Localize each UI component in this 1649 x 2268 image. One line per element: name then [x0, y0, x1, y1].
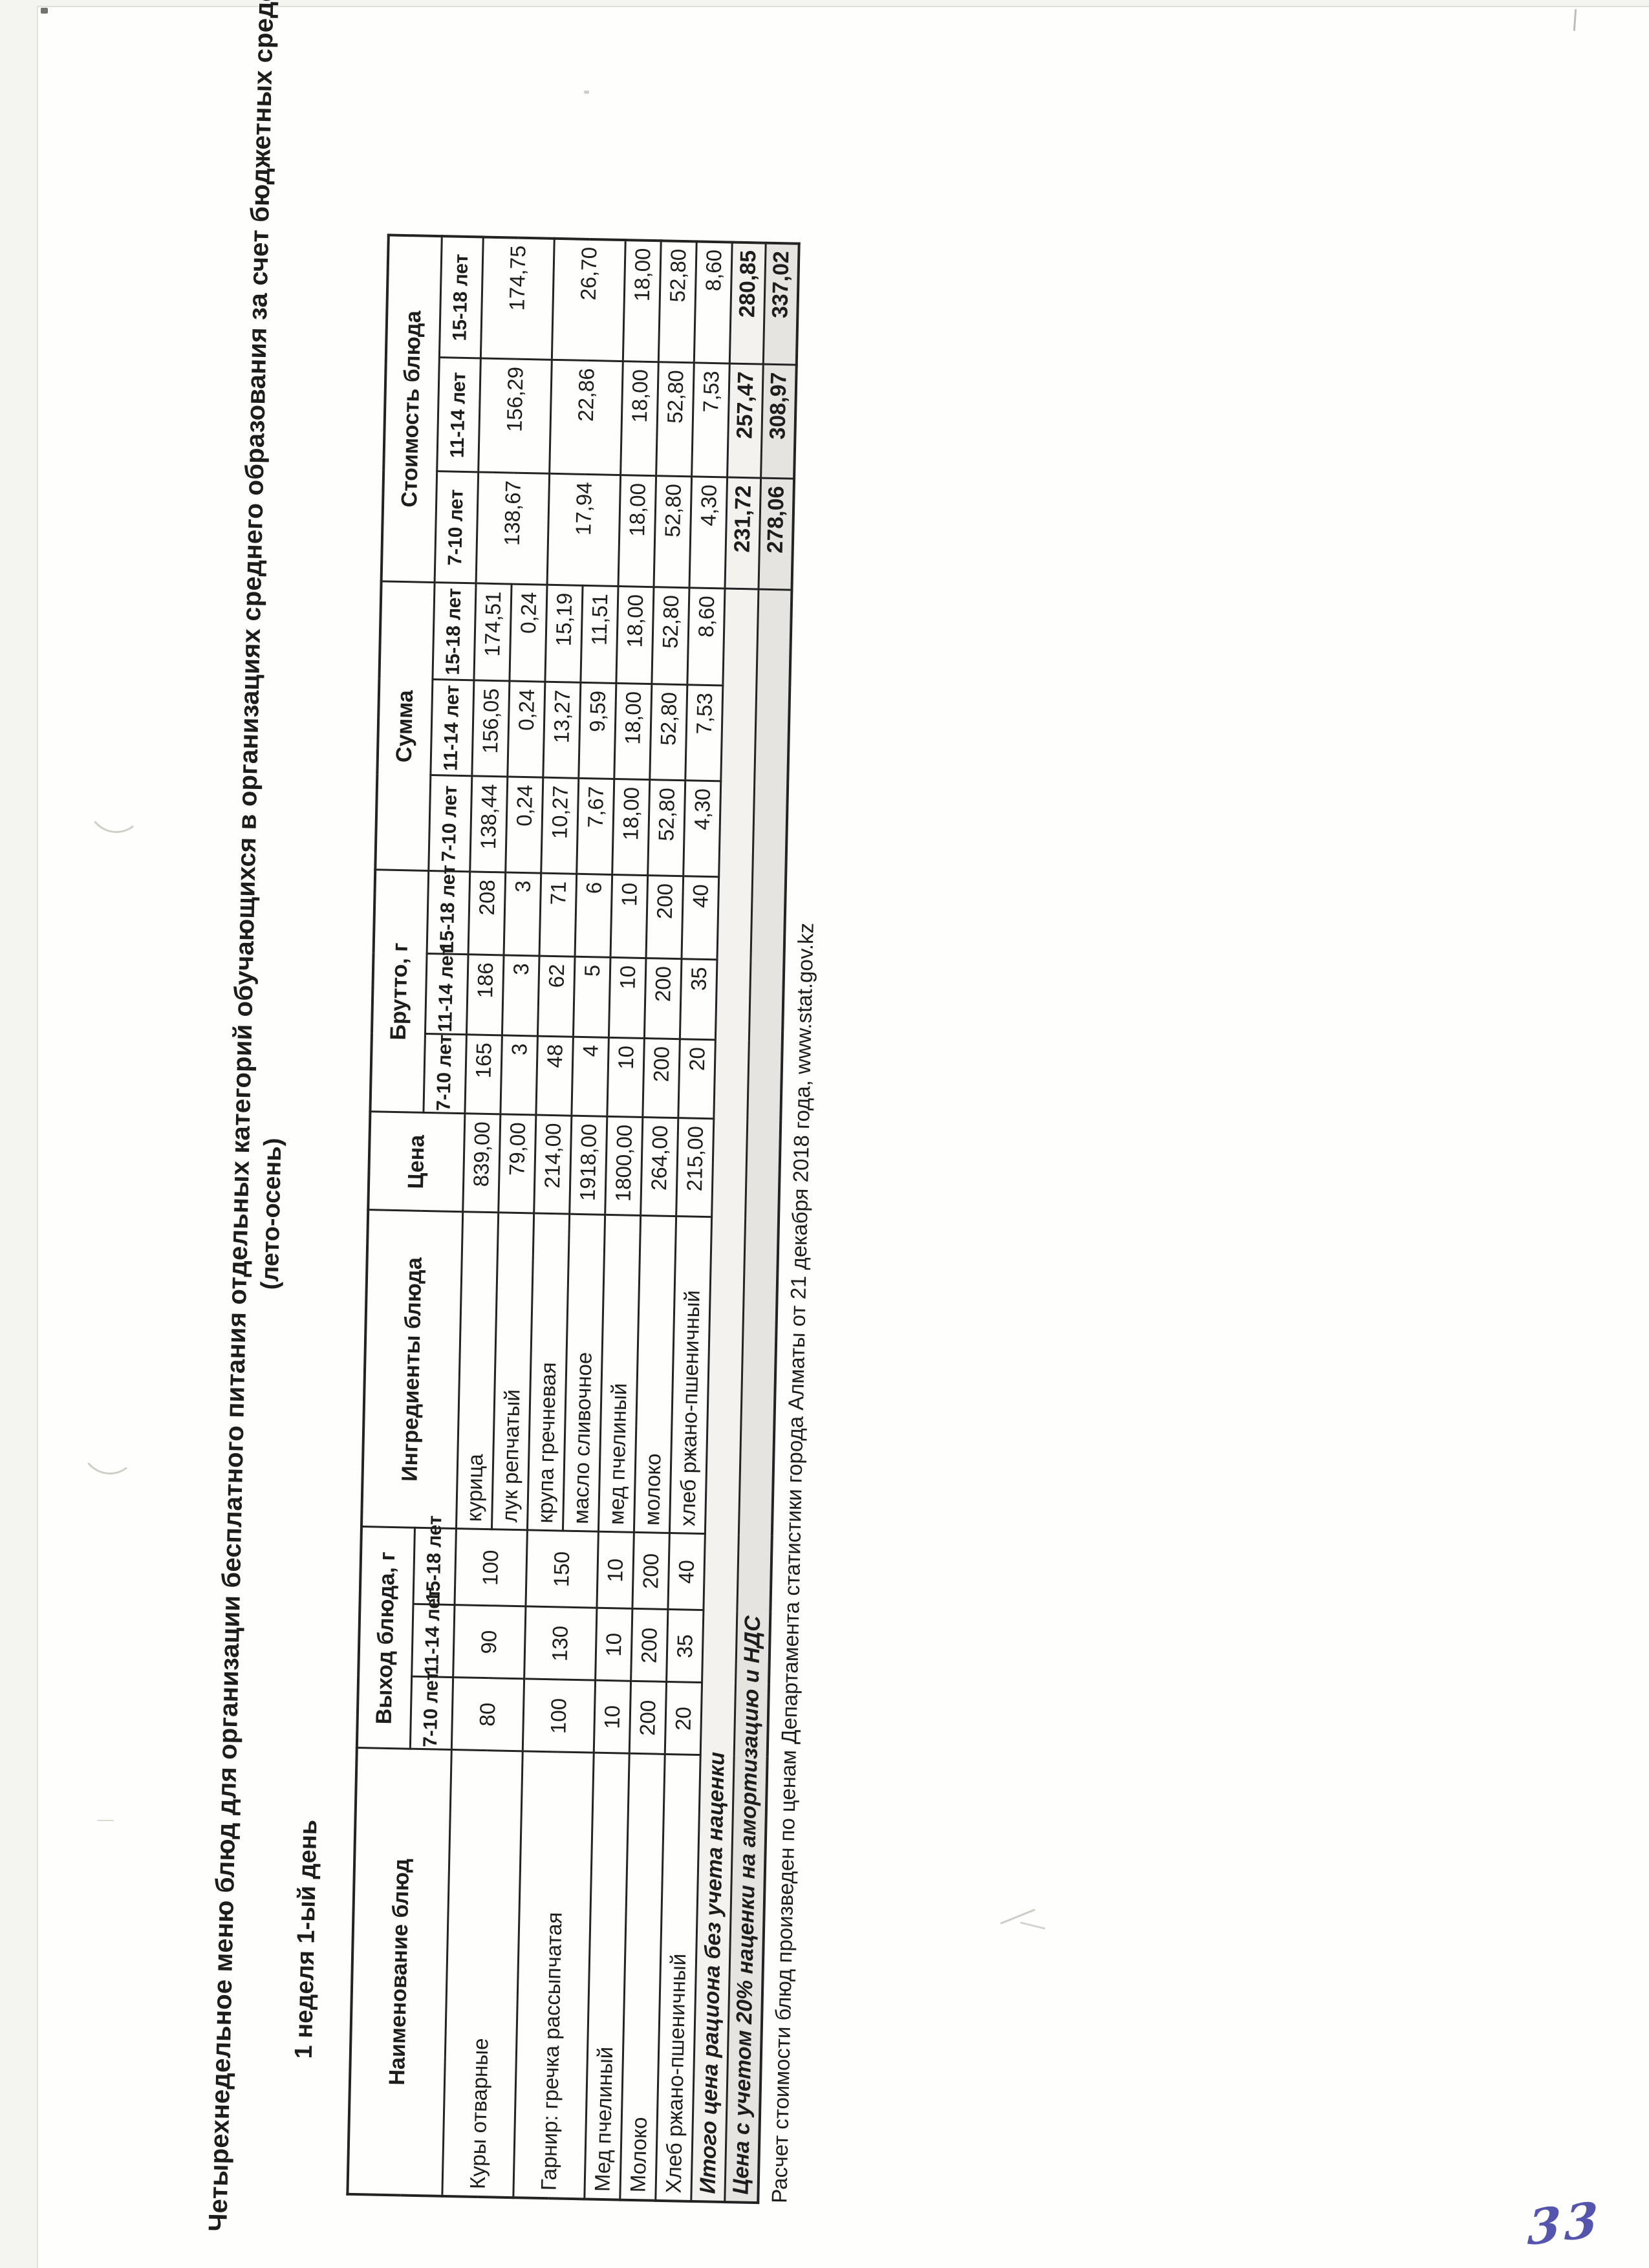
cost-value-cell: 156,29 [478, 358, 552, 473]
cost-value-cell: 138,67 [476, 472, 550, 585]
brutto-value-cell: 62 [537, 956, 575, 1037]
output-value-cell: 20 [665, 1682, 702, 1755]
output-value-cell: 200 [632, 1533, 669, 1610]
sum-value-cell: 13,27 [543, 682, 580, 779]
brutto-value-cell: 200 [644, 958, 682, 1039]
cost-value-cell: 26,70 [552, 239, 625, 362]
col-header-ingredients: Ингредиенты блюда [361, 1210, 462, 1529]
output-value-cell: 90 [453, 1605, 525, 1679]
scan-speck [41, 8, 48, 14]
sum-value-cell: 11,51 [580, 586, 618, 684]
brutto-value-cell: 71 [539, 874, 577, 957]
sum-value-cell: 138,44 [469, 776, 507, 872]
brutto-value-cell: 186 [466, 955, 504, 1035]
ingredient-name-cell: масло сливочное [563, 1215, 605, 1532]
age-header-brutto-3: 15-18 лет [427, 871, 470, 955]
output-value-cell: 100 [523, 1679, 595, 1753]
subtotal-value-7-10: 231,72 [724, 477, 760, 589]
price-value-cell: 839,00 [462, 1114, 500, 1213]
age-header-output-2: 11-14 лет [411, 1604, 454, 1678]
brutto-value-cell: 3 [502, 955, 539, 1036]
sum-value-cell: 0,24 [509, 584, 546, 682]
brutto-value-cell: 3 [504, 872, 541, 956]
price-value-cell: 214,00 [533, 1115, 571, 1214]
rotated-document: Четырехнедельное меню блюд для организац… [200, 195, 837, 2244]
header-row-groups: Наименование блюд Выход блюда, г Ингреди… [347, 235, 441, 2195]
cost-value-cell: 174,75 [480, 237, 554, 360]
sum-value-cell: 0,24 [507, 681, 544, 777]
price-value-cell: 1918,00 [569, 1116, 607, 1215]
sum-value-cell: 0,24 [505, 777, 543, 873]
handwritten-page-number: 33 [1527, 2191, 1602, 2256]
cost-value-cell: 18,00 [620, 362, 658, 476]
markup-value-7-10: 278,06 [758, 479, 794, 590]
price-value-cell: 264,00 [640, 1118, 678, 1216]
output-value-cell: 40 [667, 1533, 704, 1610]
menu-cost-table: Наименование блюд Выход блюда, г Ингреди… [346, 233, 800, 2204]
brutto-value-cell: 200 [645, 876, 683, 959]
sum-value-cell: 174,51 [473, 583, 511, 681]
brutto-value-cell: 20 [678, 1039, 715, 1119]
output-value-cell: 10 [595, 1608, 632, 1681]
cost-value-cell: 8,60 [694, 241, 732, 363]
sum-value-cell: 10,27 [541, 778, 578, 874]
cost-value-cell: 7,53 [691, 363, 729, 477]
brutto-value-cell: 35 [680, 959, 717, 1040]
cost-value-cell: 18,00 [618, 475, 656, 587]
sum-value-cell: 4,30 [683, 781, 720, 877]
output-value-cell: 200 [629, 1681, 666, 1755]
age-header-output-3: 15-18 лет [413, 1528, 455, 1605]
menu-table-body: Куры отварные8090100курица839,0016518620… [442, 237, 731, 2201]
markup-value-11-14: 308,97 [760, 365, 797, 479]
output-value-cell: 100 [454, 1529, 526, 1606]
sum-value-cell: 7,53 [685, 685, 722, 781]
output-value-cell: 130 [524, 1606, 596, 1680]
age-header-sum-2: 11-14 лет [430, 680, 473, 776]
sum-value-cell: 52,80 [651, 587, 689, 685]
output-value-cell: 35 [666, 1610, 703, 1683]
price-value-cell: 215,00 [676, 1118, 713, 1217]
cost-value-cell: 22,86 [549, 360, 623, 475]
brutto-value-cell: 200 [642, 1039, 680, 1118]
cost-value-cell: 52,80 [656, 362, 694, 477]
cost-value-cell: 52,80 [654, 476, 692, 588]
output-value-cell: 150 [525, 1530, 598, 1608]
ingredient-name-cell: мед пчелиный [598, 1215, 640, 1533]
price-value-cell: 79,00 [498, 1114, 535, 1213]
pencil-mark [97, 1820, 114, 1821]
output-value-cell: 200 [630, 1609, 667, 1682]
brutto-value-cell: 4 [571, 1037, 609, 1117]
brutto-value-cell: 10 [609, 958, 646, 1039]
age-header-brutto-2: 11-14 лет [425, 954, 468, 1035]
col-header-cost: Стоимость блюда [382, 235, 442, 583]
brutto-value-cell: 208 [468, 872, 506, 955]
age-header-cost-3: 15-18 лет [439, 236, 483, 358]
subtotal-value-11-14: 257,47 [727, 363, 763, 478]
ingredient-name-cell: крупа гречневая [527, 1213, 569, 1531]
brutto-value-cell: 40 [681, 876, 718, 960]
brutto-value-cell: 5 [573, 957, 610, 1038]
scan-speck [584, 91, 589, 94]
sum-value-cell: 52,80 [649, 684, 687, 781]
sum-value-cell: 18,00 [616, 587, 653, 684]
subtotal-value-15-18: 280,85 [729, 242, 766, 364]
markup-value-15-18: 337,02 [763, 243, 799, 365]
sum-value-cell: 52,80 [647, 780, 685, 876]
ingredient-name-cell: курица [456, 1212, 498, 1529]
brutto-value-cell: 48 [535, 1037, 573, 1116]
output-value-cell: 10 [596, 1532, 633, 1609]
dish-name-cell: Куры отварные [442, 1750, 522, 2198]
col-header-price: Цена [368, 1112, 464, 1212]
age-header-sum-1: 7-10 лет [428, 775, 471, 872]
sum-value-cell: 9,59 [578, 683, 616, 779]
col-header-sum: Сумма [375, 581, 434, 871]
sum-value-cell: 8,60 [687, 588, 724, 686]
sum-value-cell: 156,05 [471, 680, 509, 777]
col-header-output: Выход блюда, г [357, 1527, 415, 1749]
brutto-value-cell: 3 [500, 1035, 537, 1115]
col-header-brutto: Брутто, г [370, 870, 428, 1113]
cost-value-cell: 4,30 [689, 477, 727, 589]
cost-value-cell: 18,00 [623, 240, 661, 362]
age-header-sum-3: 15-18 лет [432, 583, 475, 680]
age-header-output-1: 7-10 лет [410, 1677, 453, 1750]
output-value-cell: 10 [594, 1681, 630, 1754]
age-header-cost-2: 11-14 лет [436, 358, 480, 472]
age-header-brutto-1: 7-10 лет [423, 1034, 466, 1114]
sum-value-cell: 18,00 [612, 779, 649, 876]
price-value-cell: 1800,00 [605, 1117, 642, 1216]
brutto-value-cell: 6 [575, 874, 612, 958]
brutto-value-cell: 10 [610, 875, 647, 958]
age-header-cost-1: 7-10 лет [435, 471, 479, 583]
col-header-dish: Наименование блюд [347, 1748, 451, 2196]
cost-value-cell: 17,94 [547, 474, 621, 587]
ingredient-name-cell: хлеб ржано-пшеничный [669, 1216, 711, 1534]
brutto-value-cell: 165 [464, 1035, 502, 1114]
ingredient-name-cell: молоко [634, 1216, 676, 1533]
ingredient-name-cell: лук репчатый [491, 1213, 533, 1530]
sum-value-cell: 7,67 [576, 779, 614, 875]
dish-name-cell: Гарнир: гречка рассыпчатая [513, 1751, 593, 2199]
output-value-cell: 80 [451, 1678, 524, 1751]
sum-value-cell: 18,00 [614, 684, 651, 780]
cost-value-cell: 52,80 [658, 241, 696, 363]
sum-value-cell: 15,19 [544, 585, 582, 683]
brutto-value-cell: 10 [607, 1038, 644, 1118]
